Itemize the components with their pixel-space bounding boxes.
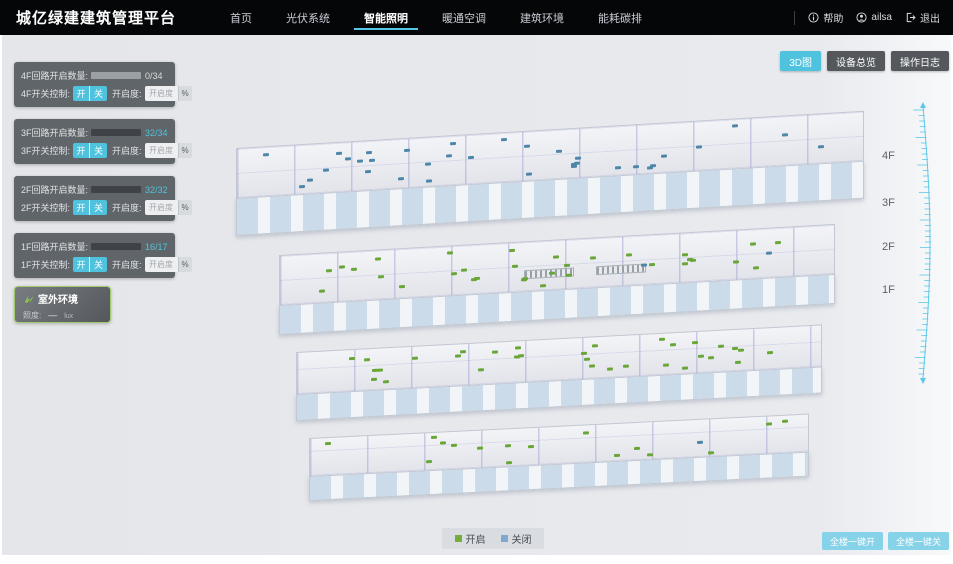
- top-header: 城亿绿建建筑管理平台 首页 光伏系统 智能照明 暖通空调 建筑环境 能耗碳排 帮…: [0, 0, 953, 35]
- light-marker: [371, 378, 377, 381]
- light-marker: [690, 259, 696, 262]
- light-marker: [447, 251, 453, 254]
- light-marker: [634, 447, 640, 450]
- help-label: 帮助: [823, 10, 843, 25]
- all-floors-on-button[interactable]: 全楼一键开: [822, 532, 883, 550]
- light-marker: [766, 422, 772, 425]
- switch-on-button[interactable]: 开: [73, 143, 90, 158]
- light-marker: [750, 242, 756, 245]
- building-floor-1f[interactable]: [309, 414, 809, 501]
- light-marker: [564, 264, 570, 267]
- dim-level-input[interactable]: 开启度: [145, 86, 178, 101]
- light-marker: [451, 443, 457, 446]
- light-marker: [650, 164, 656, 167]
- dim-unit-button[interactable]: %: [178, 200, 192, 215]
- legend-on-swatch: [455, 535, 462, 542]
- light-marker: [506, 462, 512, 465]
- legend-off-swatch: [501, 535, 508, 542]
- light-marker: [514, 355, 520, 358]
- app-title: 城亿绿建建筑管理平台: [16, 7, 176, 28]
- light-marker: [766, 251, 772, 254]
- dim-level-label: 开启度:: [112, 144, 142, 157]
- building-floor-4f[interactable]: [236, 111, 864, 236]
- switch-control-label: 2F开关控制:: [21, 201, 70, 214]
- light-marker: [375, 257, 381, 260]
- light-marker: [718, 345, 724, 348]
- light-marker: [478, 368, 484, 371]
- light-marker: [412, 356, 418, 359]
- floor-label-2f: 2F: [882, 241, 895, 253]
- header-right: 帮助 ailsa 退出: [794, 10, 940, 25]
- floor-panel-3f: 3F回路开启数量: 32/34 3F开关控制: 开关 开启度: 开启度%: [14, 119, 175, 164]
- floor-panel-4f: 4F回路开启数量: 0/34 4F开关控制: 开关 开启度: 开启度%: [14, 62, 175, 107]
- light-marker: [460, 351, 466, 354]
- light-marker: [509, 249, 515, 252]
- light-marker: [738, 349, 744, 352]
- nav-item-energy-carbon[interactable]: 能耗碳排: [596, 0, 644, 35]
- light-marker: [692, 341, 698, 344]
- light-marker: [649, 263, 655, 266]
- building-3d-view[interactable]: [185, 45, 913, 524]
- light-marker: [505, 444, 511, 447]
- light-marker: [732, 125, 738, 128]
- switch-off-button[interactable]: 关: [90, 200, 107, 215]
- light-marker: [581, 352, 587, 355]
- light-marker: [775, 241, 781, 244]
- escalator-shape: [596, 264, 646, 276]
- bulk-actions: 全楼一键开 全楼一键关: [822, 532, 949, 550]
- dim-level-label: 开启度:: [112, 258, 142, 271]
- switch-off-button[interactable]: 关: [90, 86, 107, 101]
- light-marker: [753, 266, 759, 269]
- light-marker: [426, 460, 432, 463]
- light-marker: [399, 285, 405, 288]
- dim-level-label: 开启度:: [112, 87, 142, 100]
- light-marker: [733, 260, 739, 263]
- floor-label-4f: 4F: [882, 150, 895, 162]
- light-marker: [526, 172, 532, 175]
- light-marker: [377, 368, 383, 371]
- app-root: 城亿绿建建筑管理平台 首页 光伏系统 智能照明 暖通空调 建筑环境 能耗碳排 帮…: [0, 0, 953, 564]
- switch-on-button[interactable]: 开: [73, 257, 90, 272]
- light-marker: [404, 149, 410, 152]
- light-marker: [682, 366, 688, 369]
- legend-item-on: 开启: [455, 531, 486, 546]
- light-marker: [431, 436, 437, 439]
- logout-label: 退出: [920, 10, 940, 25]
- light-marker: [589, 364, 595, 367]
- light-marker: [383, 380, 389, 383]
- light-marker: [369, 159, 375, 162]
- light-marker: [307, 178, 313, 181]
- floor-panel-1f: 1F回路开启数量: 16/17 1F开关控制: 开关 开启度: 开启度%: [14, 233, 175, 278]
- circuit-progress-bar: [91, 186, 141, 193]
- light-state-legend: 开启 关闭: [442, 528, 544, 549]
- light-marker: [571, 165, 577, 168]
- main-nav: 首页 光伏系统 智能照明 暖通空调 建筑环境 能耗碳排: [228, 0, 644, 35]
- light-marker: [697, 440, 703, 443]
- light-marker: [455, 354, 461, 357]
- light-marker: [440, 441, 446, 444]
- nav-item-smart-lighting[interactable]: 智能照明: [362, 0, 410, 35]
- info-icon: [808, 12, 819, 23]
- leaf-icon: [23, 293, 34, 304]
- logout-button[interactable]: 退出: [905, 10, 940, 25]
- light-marker: [524, 145, 530, 148]
- nav-item-building-env[interactable]: 建筑环境: [518, 0, 566, 35]
- help-button[interactable]: 帮助: [808, 10, 843, 25]
- light-marker: [682, 262, 688, 265]
- nav-item-pv-system[interactable]: 光伏系统: [284, 0, 332, 35]
- light-marker: [623, 364, 629, 367]
- light-marker: [461, 268, 467, 271]
- light-marker: [398, 177, 404, 180]
- light-marker: [647, 453, 653, 456]
- logout-icon: [905, 12, 916, 23]
- circuit-progress-bar: [91, 243, 141, 250]
- view-button-operation-log[interactable]: 操作日志: [891, 51, 949, 71]
- dim-level-label: 开启度:: [112, 201, 142, 214]
- light-marker: [782, 133, 788, 136]
- light-marker: [633, 165, 639, 168]
- light-marker: [641, 264, 647, 267]
- light-marker: [426, 180, 432, 183]
- light-marker: [336, 152, 342, 155]
- floor-label-3f: 3F: [882, 197, 895, 209]
- floor-scale-ruler[interactable]: [910, 100, 938, 390]
- light-marker: [590, 256, 596, 259]
- dim-level-input[interactable]: 开启度: [145, 257, 178, 272]
- light-marker: [661, 154, 667, 157]
- light-marker: [782, 420, 788, 423]
- light-marker: [592, 345, 598, 348]
- light-marker: [583, 431, 589, 434]
- user-name: ailsa: [871, 12, 892, 23]
- light-marker: [364, 358, 370, 361]
- light-marker: [682, 253, 688, 256]
- nav-item-home[interactable]: 首页: [228, 0, 254, 35]
- building-floor-2f[interactable]: [296, 324, 822, 421]
- light-marker: [663, 364, 669, 367]
- illuminance-label: 照度:: [23, 310, 41, 321]
- light-marker: [323, 168, 329, 171]
- light-marker: [501, 138, 507, 141]
- view-button-3d-map[interactable]: 3D图: [780, 51, 821, 71]
- header-divider: [794, 11, 795, 25]
- switch-off-button[interactable]: 关: [90, 257, 107, 272]
- circuit-progress-bar: [91, 72, 141, 79]
- light-marker: [345, 157, 351, 160]
- nav-item-hvac[interactable]: 暖通空调: [440, 0, 488, 35]
- light-marker: [425, 162, 431, 165]
- light-marker: [607, 367, 613, 370]
- illuminance-unit: lux: [64, 313, 73, 320]
- dim-unit-button[interactable]: %: [178, 257, 192, 272]
- circuit-count-value: 0/34: [145, 71, 163, 81]
- light-marker: [351, 268, 357, 271]
- light-marker: [446, 154, 452, 157]
- light-marker: [339, 265, 345, 268]
- outdoor-env-panel: 室外环境 照度: — lux: [14, 286, 111, 323]
- circuit-count-label: 3F回路开启数量:: [21, 126, 88, 139]
- circuit-count-label: 2F回路开启数量:: [21, 183, 88, 196]
- light-marker: [735, 360, 741, 363]
- light-marker: [357, 159, 363, 162]
- light-marker: [451, 272, 457, 275]
- dim-level-input[interactable]: 开启度: [145, 143, 178, 158]
- light-marker: [528, 445, 534, 448]
- circuit-progress-bar: [91, 129, 141, 136]
- dim-level-input[interactable]: 开启度: [145, 200, 178, 215]
- light-marker: [626, 253, 632, 256]
- light-marker: [698, 355, 704, 358]
- dim-unit-button[interactable]: %: [178, 143, 192, 158]
- legend-off-label: 关闭: [512, 531, 532, 546]
- switch-control-label: 3F开关控制:: [21, 144, 70, 157]
- floor-label-1f: 1F: [882, 284, 895, 296]
- light-marker: [556, 149, 562, 152]
- light-marker: [515, 346, 521, 349]
- user-icon: [856, 12, 867, 23]
- building-floor-3f[interactable]: [279, 224, 835, 335]
- light-marker: [708, 452, 714, 455]
- circuit-count-value: 32/32: [145, 185, 168, 195]
- light-marker: [615, 166, 621, 169]
- legend-item-off: 关闭: [501, 531, 532, 546]
- switch-on-button[interactable]: 开: [73, 200, 90, 215]
- switch-off-button[interactable]: 关: [90, 143, 107, 158]
- switch-on-button[interactable]: 开: [73, 86, 90, 101]
- light-marker: [708, 356, 714, 359]
- light-marker: [553, 256, 559, 259]
- light-marker: [471, 278, 477, 281]
- light-marker: [450, 142, 456, 145]
- circuit-count-label: 4F回路开启数量:: [21, 69, 88, 82]
- light-marker: [540, 284, 546, 287]
- outdoor-title: 室外环境: [38, 291, 78, 306]
- light-marker: [614, 454, 620, 457]
- circuit-count-value: 16/17: [145, 242, 168, 252]
- view-button-device-overview[interactable]: 设备总览: [827, 51, 885, 71]
- light-marker: [477, 447, 483, 450]
- light-marker: [659, 337, 665, 340]
- light-marker: [566, 273, 572, 276]
- light-marker: [584, 358, 590, 361]
- light-marker: [365, 170, 371, 173]
- light-marker: [319, 289, 325, 292]
- illuminance-value: —: [48, 310, 57, 320]
- circuit-count-value: 32/34: [145, 128, 168, 138]
- switch-control-label: 4F开关控制:: [21, 87, 70, 100]
- light-marker: [326, 269, 332, 272]
- light-marker: [575, 157, 581, 160]
- switch-control-label: 1F开关控制:: [21, 258, 70, 271]
- light-marker: [366, 150, 372, 153]
- light-marker: [468, 155, 474, 158]
- light-marker: [767, 351, 773, 354]
- light-marker: [818, 145, 824, 148]
- light-marker: [263, 153, 269, 156]
- light-marker: [696, 146, 702, 149]
- light-marker: [549, 271, 555, 274]
- light-marker: [670, 343, 676, 346]
- light-marker: [492, 350, 498, 353]
- floor-panel-2f: 2F回路开启数量: 32/32 2F开关控制: 开关 开启度: 开启度%: [14, 176, 175, 221]
- light-marker: [299, 185, 305, 188]
- light-marker: [325, 442, 331, 445]
- dim-unit-button[interactable]: %: [178, 86, 192, 101]
- user-menu[interactable]: ailsa: [856, 12, 892, 23]
- view-toolbar: 3D图 设备总览 操作日志: [780, 51, 949, 71]
- light-marker: [522, 277, 528, 280]
- light-marker: [349, 357, 355, 360]
- light-marker: [378, 275, 384, 278]
- legend-on-label: 开启: [466, 531, 486, 546]
- light-marker: [512, 265, 518, 268]
- all-floors-off-button[interactable]: 全楼一键关: [888, 532, 949, 550]
- circuit-count-label: 1F回路开启数量:: [21, 240, 88, 253]
